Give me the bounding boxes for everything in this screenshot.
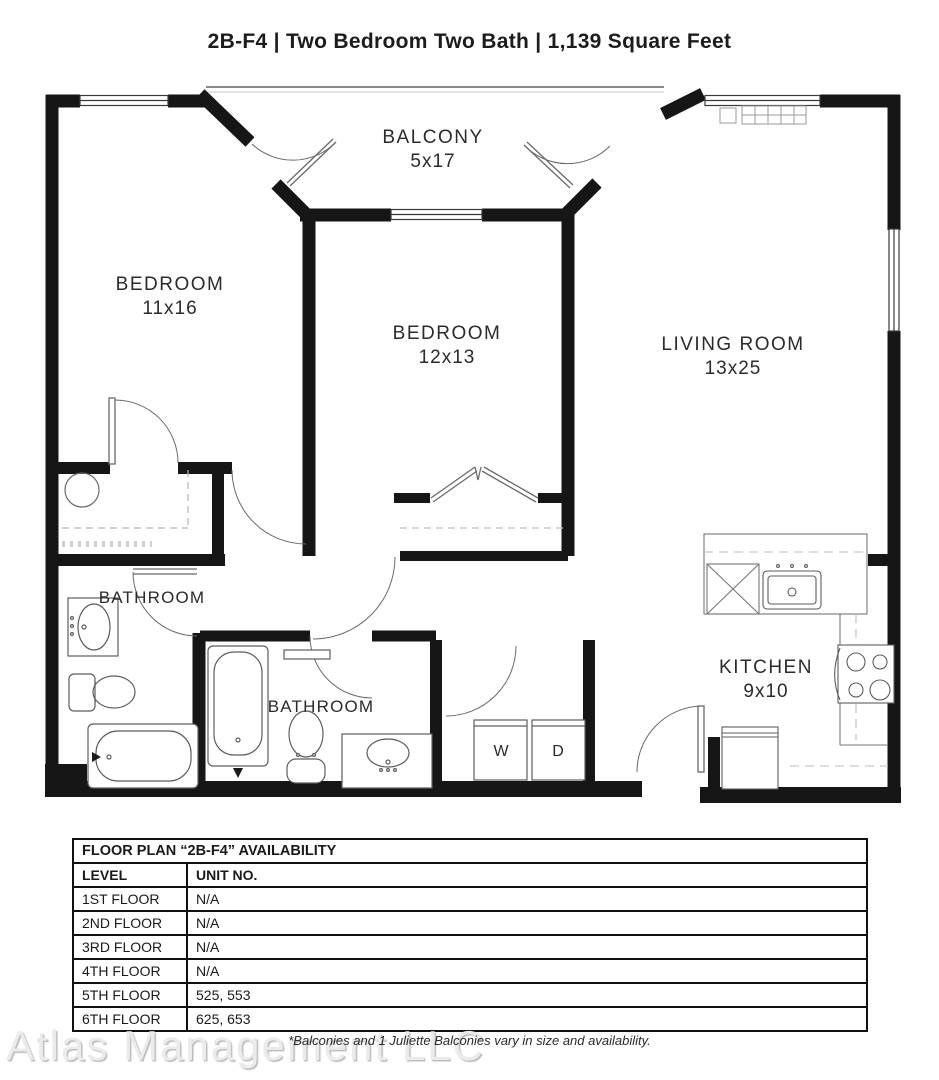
- toilet-icon: [69, 674, 135, 711]
- bathroom1-fixtures: [68, 598, 198, 788]
- level-cell: 3RD FLOOR: [73, 935, 187, 959]
- table-row: 1ST FLOOR N/A: [73, 887, 867, 911]
- unit-cell: N/A: [187, 935, 867, 959]
- door-laundry-closet: [446, 646, 516, 716]
- disclaimer-text: *Balconies and 1 Juliette Balconies vary…: [0, 1033, 939, 1048]
- svg-text:BEDROOM: BEDROOM: [116, 274, 225, 295]
- bifold-doors-bedroom2-closet: [431, 467, 538, 502]
- laundry-closet: [474, 720, 585, 780]
- toilet-icon: [287, 711, 325, 783]
- bathtub-icon: [88, 724, 198, 788]
- balcony-railing: [206, 87, 664, 92]
- table-row: 2ND FLOOR N/A: [73, 911, 867, 935]
- svg-text:13x25: 13x25: [705, 358, 762, 379]
- window-top-right: [705, 96, 820, 106]
- door-bedroom1-closet: [109, 398, 178, 464]
- door-living-balcony: [524, 142, 610, 188]
- column-header-level: LEVEL: [73, 863, 187, 887]
- closet-stool-icon: [65, 473, 99, 507]
- vent-icon: [720, 106, 806, 124]
- table-row: 5TH FLOOR 525, 553: [73, 983, 867, 1007]
- svg-text:12x13: 12x13: [419, 347, 476, 368]
- stove-icon: [835, 645, 894, 703]
- dryer-label: D: [552, 743, 564, 760]
- availability-table: FLOOR PLAN “2B-F4” AVAILABILITY LEVEL UN…: [72, 838, 868, 1032]
- balcony-label: BALCONY 5x17: [382, 127, 483, 172]
- bathtub-icon: [208, 646, 268, 778]
- svg-text:BEDROOM: BEDROOM: [393, 323, 502, 344]
- level-cell: 4TH FLOOR: [73, 959, 187, 983]
- svg-text:BALCONY: BALCONY: [382, 127, 483, 148]
- unit-cell: 525, 553: [187, 983, 867, 1007]
- bathroom2-fixtures: [208, 646, 432, 788]
- table-title: FLOOR PLAN “2B-F4” AVAILABILITY: [73, 839, 867, 863]
- svg-text:KITCHEN: KITCHEN: [719, 657, 813, 678]
- table-title-row: FLOOR PLAN “2B-F4” AVAILABILITY: [73, 839, 867, 863]
- bedroom1-label: BEDROOM 11x16: [116, 274, 225, 319]
- level-cell: 5TH FLOOR: [73, 983, 187, 1007]
- unit-cell: N/A: [187, 911, 867, 935]
- living-room-label: LIVING ROOM 13x25: [661, 334, 804, 379]
- floor-plan-figure: BALCONY 5x17 BEDROOM 11x16 BEDROOM 12x13…: [0, 0, 939, 810]
- table-header-row: LEVEL UNIT NO.: [73, 863, 867, 887]
- table-row: 3RD FLOOR N/A: [73, 935, 867, 959]
- svg-text:9x10: 9x10: [743, 681, 788, 702]
- floor-plan-page: 2B-F4 | Two Bedroom Two Bath | 1,139 Squ…: [0, 0, 939, 1080]
- bedroom2-label: BEDROOM 12x13: [393, 323, 502, 368]
- kitchen-sink-icon: [763, 565, 821, 609]
- door-bedroom1-balcony: [252, 139, 336, 186]
- bathroom1-label: BATHROOM: [99, 588, 206, 607]
- svg-text:5x17: 5x17: [410, 151, 455, 172]
- svg-text:BATHROOM: BATHROOM: [99, 588, 206, 607]
- washer-label: W: [493, 743, 509, 760]
- window-bedroom2: [391, 210, 482, 220]
- unit-cell: N/A: [187, 959, 867, 983]
- svg-text:11x16: 11x16: [142, 298, 197, 319]
- door-entry: [637, 706, 704, 772]
- refrigerator-icon: [722, 727, 778, 789]
- level-cell: 2ND FLOOR: [73, 911, 187, 935]
- window-top-left: [80, 96, 168, 106]
- level-cell: 1ST FLOOR: [73, 887, 187, 911]
- kitchen-label: KITCHEN 9x10: [719, 657, 813, 702]
- svg-text:LIVING ROOM: LIVING ROOM: [661, 334, 804, 355]
- door-bedroom2: [313, 557, 395, 639]
- column-header-unit: UNIT NO.: [187, 863, 867, 887]
- table-row: 4TH FLOOR N/A: [73, 959, 867, 983]
- dishwasher-icon: [707, 564, 759, 614]
- towel-bar-icon: [284, 650, 330, 659]
- bathroom2-label: BATHROOM: [268, 697, 375, 716]
- svg-text:BATHROOM: BATHROOM: [268, 697, 375, 716]
- door-bathroom2: [310, 636, 372, 698]
- window-right: [889, 229, 899, 331]
- sink-icon: [342, 734, 432, 788]
- door-bedroom1-hall: [232, 470, 306, 544]
- unit-cell: N/A: [187, 887, 867, 911]
